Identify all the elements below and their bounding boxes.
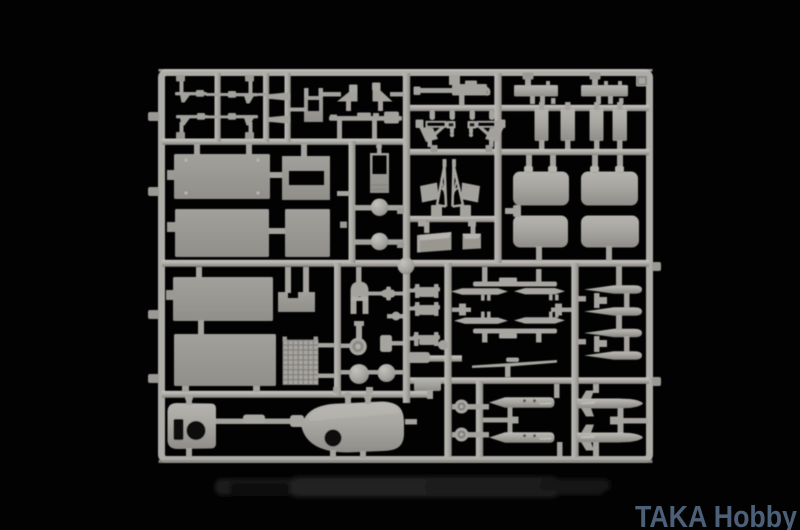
svg-text:TAKA Hobby: TAKA Hobby	[635, 499, 798, 530]
